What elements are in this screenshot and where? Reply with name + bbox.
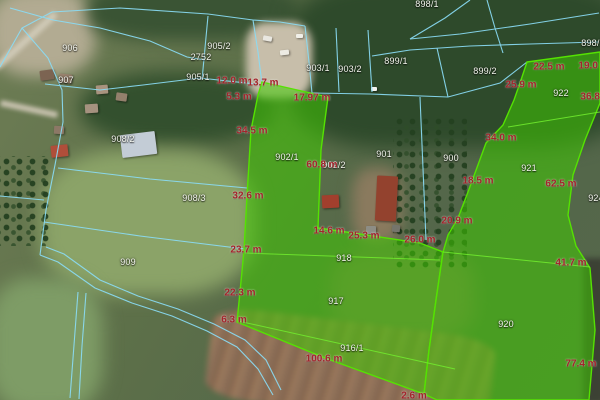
parcel-boundary-line bbox=[253, 20, 262, 84]
parcel-boundary-line bbox=[40, 255, 273, 395]
cadastral-map-view[interactable]: 9069072752905/2905/1903/1903/2899/1899/2… bbox=[0, 0, 600, 400]
parcel-boundary-line bbox=[410, 0, 470, 39]
parcel-boundary-line bbox=[305, 26, 312, 93]
parcel-boundary-line bbox=[0, 196, 44, 200]
highlighted-parcel-east[interactable] bbox=[424, 52, 600, 400]
parcel-boundary-line bbox=[45, 78, 256, 90]
parcel-boundary-line bbox=[312, 62, 527, 97]
parcel-boundary-line bbox=[79, 293, 86, 399]
parcel-boundary-line bbox=[0, 8, 253, 67]
parcel-boundary-line bbox=[410, 13, 599, 39]
parcel-boundary-line bbox=[70, 292, 78, 398]
parcel-boundary-line bbox=[420, 97, 426, 240]
parcel-boundary-line bbox=[44, 222, 245, 249]
highlighted-parcel-central[interactable] bbox=[237, 82, 443, 394]
parcel-boundary-line bbox=[437, 48, 448, 97]
parcel-boundary-line bbox=[10, 8, 205, 60]
parcel-boundary-line bbox=[372, 42, 598, 56]
parcel-boundary-line bbox=[253, 20, 305, 26]
parcel-boundary-line bbox=[336, 28, 339, 92]
parcel-boundary-line bbox=[202, 16, 208, 80]
parcel-overlay-layer bbox=[0, 0, 600, 400]
parcel-boundary-line bbox=[368, 30, 372, 92]
highlighted-parcels bbox=[237, 52, 600, 400]
parcel-boundary-line bbox=[22, 28, 63, 255]
parcel-boundary-line bbox=[58, 168, 247, 188]
